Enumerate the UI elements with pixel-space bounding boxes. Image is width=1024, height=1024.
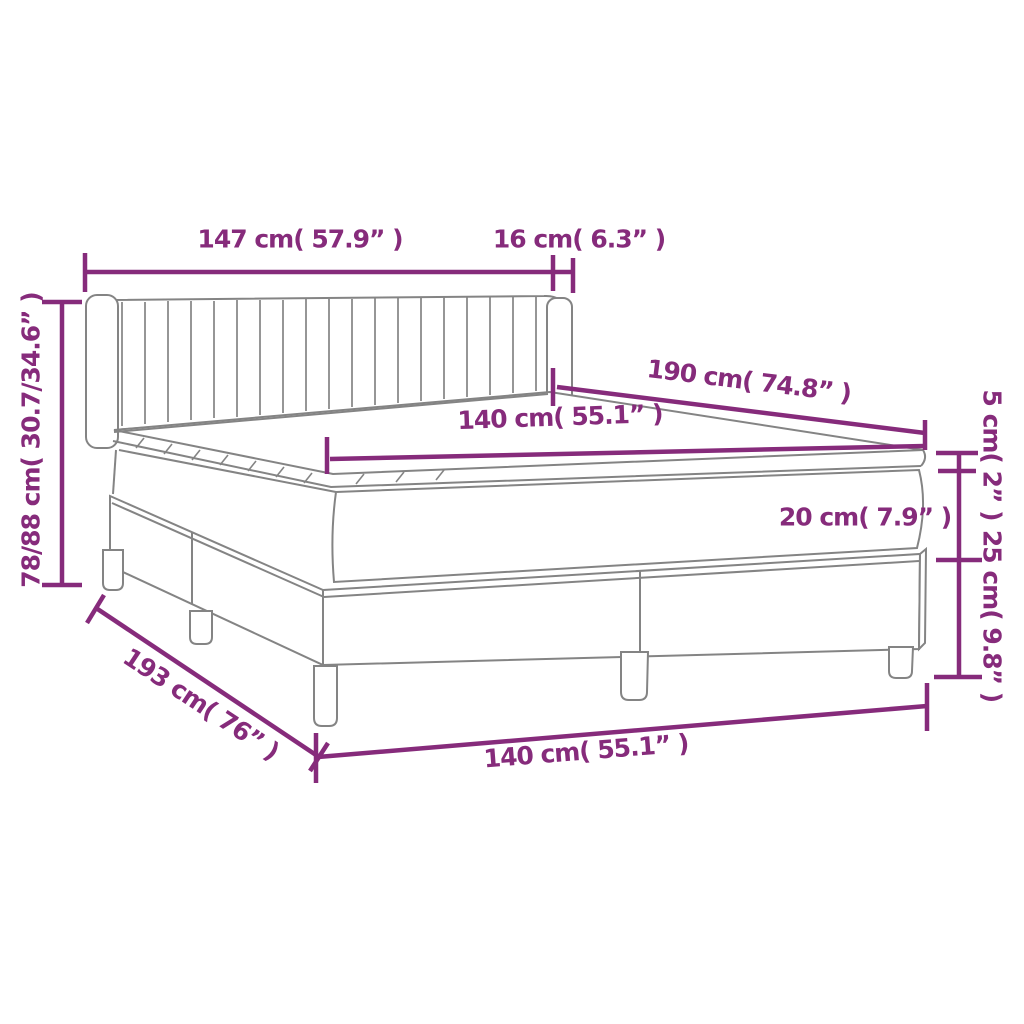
dimension-diagram: 147 cm( 57.9” ) 16 cm( 6.3” ) 78/88 cm( … bbox=[0, 0, 1024, 1024]
label-topper-thickness: 5 cm( 2” ) bbox=[978, 389, 1007, 520]
headboard-left-wing bbox=[86, 295, 118, 448]
label-headboard-depth: 16 cm( 6.3” ) bbox=[493, 225, 665, 254]
leg bbox=[889, 647, 913, 678]
dim-line-overall-height bbox=[42, 302, 82, 585]
dim-line-headboard-width bbox=[85, 253, 573, 293]
dim-line-height-stack bbox=[934, 453, 982, 677]
leg bbox=[621, 652, 648, 700]
leg bbox=[103, 550, 123, 590]
label-base-height: 25 cm( 9.8” ) bbox=[978, 530, 1007, 702]
leg bbox=[190, 611, 212, 644]
label-headboard-width: 147 cm( 57.9” ) bbox=[197, 225, 402, 254]
label-mattress-thickness: 20 cm( 7.9” ) bbox=[779, 503, 951, 532]
leg bbox=[314, 666, 337, 726]
label-overall-height: 78/88 cm( 30.7/34.6” ) bbox=[17, 292, 46, 587]
